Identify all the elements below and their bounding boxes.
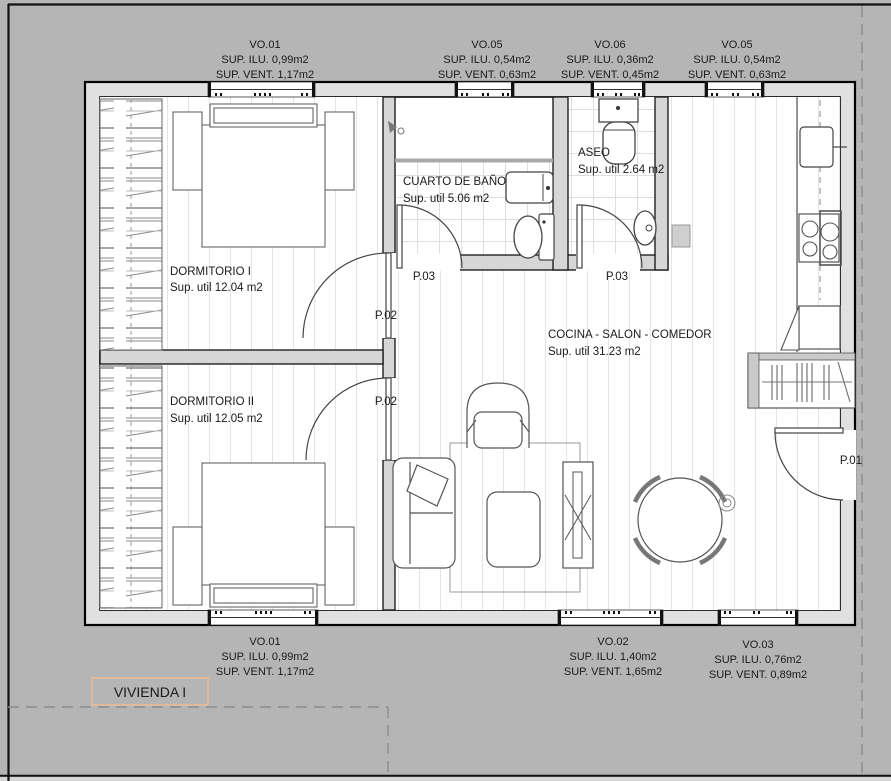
window-code: VO.01 — [249, 39, 280, 51]
window-ilu: SUP. ILU. 0,76m2 — [714, 654, 801, 666]
room-name-aseo: ASEO — [578, 147, 610, 159]
toilet-button — [542, 220, 545, 223]
window-ilu: SUP. ILU. 0,36m2 — [566, 54, 653, 66]
pillow-inner — [214, 588, 313, 603]
window-ilu: SUP. ILU. 1,40m2 — [569, 651, 656, 663]
door-label-p02-dorm2: P.02 — [375, 396, 397, 408]
window-code: VO.02 — [597, 636, 628, 648]
water-heater — [672, 225, 690, 247]
window-vent: SUP. VENT. 0,63m2 — [688, 69, 786, 81]
window-vent: SUP. VENT. 1,17m2 — [216, 69, 314, 81]
window-code: VO.03 — [742, 639, 773, 651]
opening-aseo — [576, 254, 640, 271]
window-code: VO.05 — [471, 39, 502, 51]
bed-body — [202, 125, 325, 247]
door-label-p03-aseo: P.03 — [606, 271, 628, 283]
coffee-table — [487, 492, 540, 567]
nightstand — [173, 112, 202, 190]
hall-wall-middle — [383, 338, 395, 378]
window-ilu: SUP. ILU. 0,99m2 — [221, 54, 308, 66]
shelf-cap — [748, 353, 759, 408]
nightstand — [173, 527, 202, 605]
pillow-inner — [214, 108, 313, 123]
room-area-dorm1: Sup. util 12.04 m2 — [170, 282, 263, 294]
window-code: VO.06 — [594, 39, 625, 51]
door-leaf-aseo — [577, 205, 582, 268]
window-code: VO.05 — [721, 39, 752, 51]
window-vo03-bottom — [718, 610, 798, 625]
bed-body — [202, 463, 325, 585]
opening-bath — [396, 254, 460, 271]
kitchen-sink — [800, 127, 833, 167]
nightstand — [325, 112, 354, 190]
door-leaf-entrance — [775, 428, 843, 433]
window-code: VO.01 — [249, 636, 280, 648]
toilet-bowl-bath — [514, 216, 542, 258]
title-label: VIVIENDA I — [114, 684, 186, 700]
window-vent: SUP. VENT. 1,17m2 — [216, 666, 314, 678]
entry-shelf — [748, 353, 855, 408]
room-area-aseo: Sup. util 2.64 m2 — [578, 164, 664, 176]
window-vo02-bottom — [558, 610, 663, 625]
window-vent: SUP. VENT. 1,65m2 — [564, 666, 662, 678]
nightstand — [325, 527, 354, 605]
window-vent: SUP. VENT. 0,89m2 — [709, 669, 807, 681]
washbasin-aseo — [634, 211, 656, 245]
sofa — [393, 458, 455, 568]
shelf-top — [748, 353, 855, 360]
window-ilu: SUP. ILU. 0,54m2 — [443, 54, 530, 66]
washbasin-counter — [506, 172, 553, 203]
window-vo05-top-1 — [455, 82, 514, 97]
window-vo06-top — [591, 82, 645, 97]
tv-unit — [563, 462, 593, 568]
bedroom-divider-wall — [100, 350, 383, 364]
door-leaf-dorm2 — [386, 378, 391, 460]
door-label-p03-bath: P.03 — [413, 271, 435, 283]
floor-plan-drawing: DORMITORIO I Sup. util 12.04 m2 DORMITOR… — [0, 0, 891, 781]
window-ilu: SUP. ILU. 0,99m2 — [221, 651, 308, 663]
building — [85, 82, 856, 625]
window-vo01-bottom — [208, 610, 318, 625]
armchair — [467, 383, 529, 448]
aseo-east-wall — [655, 97, 668, 270]
window-vent: SUP. VENT. 0,45m2 — [561, 69, 659, 81]
floor-living — [395, 270, 840, 610]
room-name-living: COCINA - SALON - COMEDOR — [548, 329, 712, 341]
door-leaf-dorm1 — [386, 253, 391, 338]
sheet-bottom-margin — [0, 777, 891, 781]
window-vent: SUP. VENT. 0,63m2 — [438, 69, 536, 81]
faucet-dot — [546, 186, 550, 190]
window-ilu: SUP. ILU. 0,54m2 — [693, 54, 780, 66]
bath-aseo-divider-wall — [553, 97, 568, 270]
door-label-p01-entrance: P.01 — [840, 455, 862, 467]
dining-table — [638, 478, 722, 562]
toilet-tank-aseo — [599, 99, 638, 122]
wardrobe-dorm1 — [100, 99, 162, 350]
window-vo05-top-2 — [705, 82, 764, 97]
floor-plan-sheet: DORMITORIO I Sup. util 12.04 m2 DORMITOR… — [0, 0, 891, 781]
window-vo01-top — [208, 82, 315, 97]
room-name-bath: CUARTO DE BAÑO — [403, 175, 506, 188]
hall-wall-upper — [383, 97, 395, 253]
toilet-button — [616, 106, 620, 110]
room-area-dorm2: Sup. util 12.05 m2 — [170, 413, 263, 425]
room-name-dorm1: DORMITORIO I — [170, 266, 251, 278]
fridge — [799, 306, 840, 349]
room-area-living: Sup. util 31.23 m2 — [548, 346, 641, 358]
door-leaf-bath — [397, 205, 402, 268]
room-area-bath: Sup. util 5.06 m2 — [403, 193, 489, 205]
door-label-p02-dorm1: P.02 — [375, 310, 397, 322]
cooktop — [799, 214, 839, 262]
room-name-dorm2: DORMITORIO II — [170, 396, 254, 408]
